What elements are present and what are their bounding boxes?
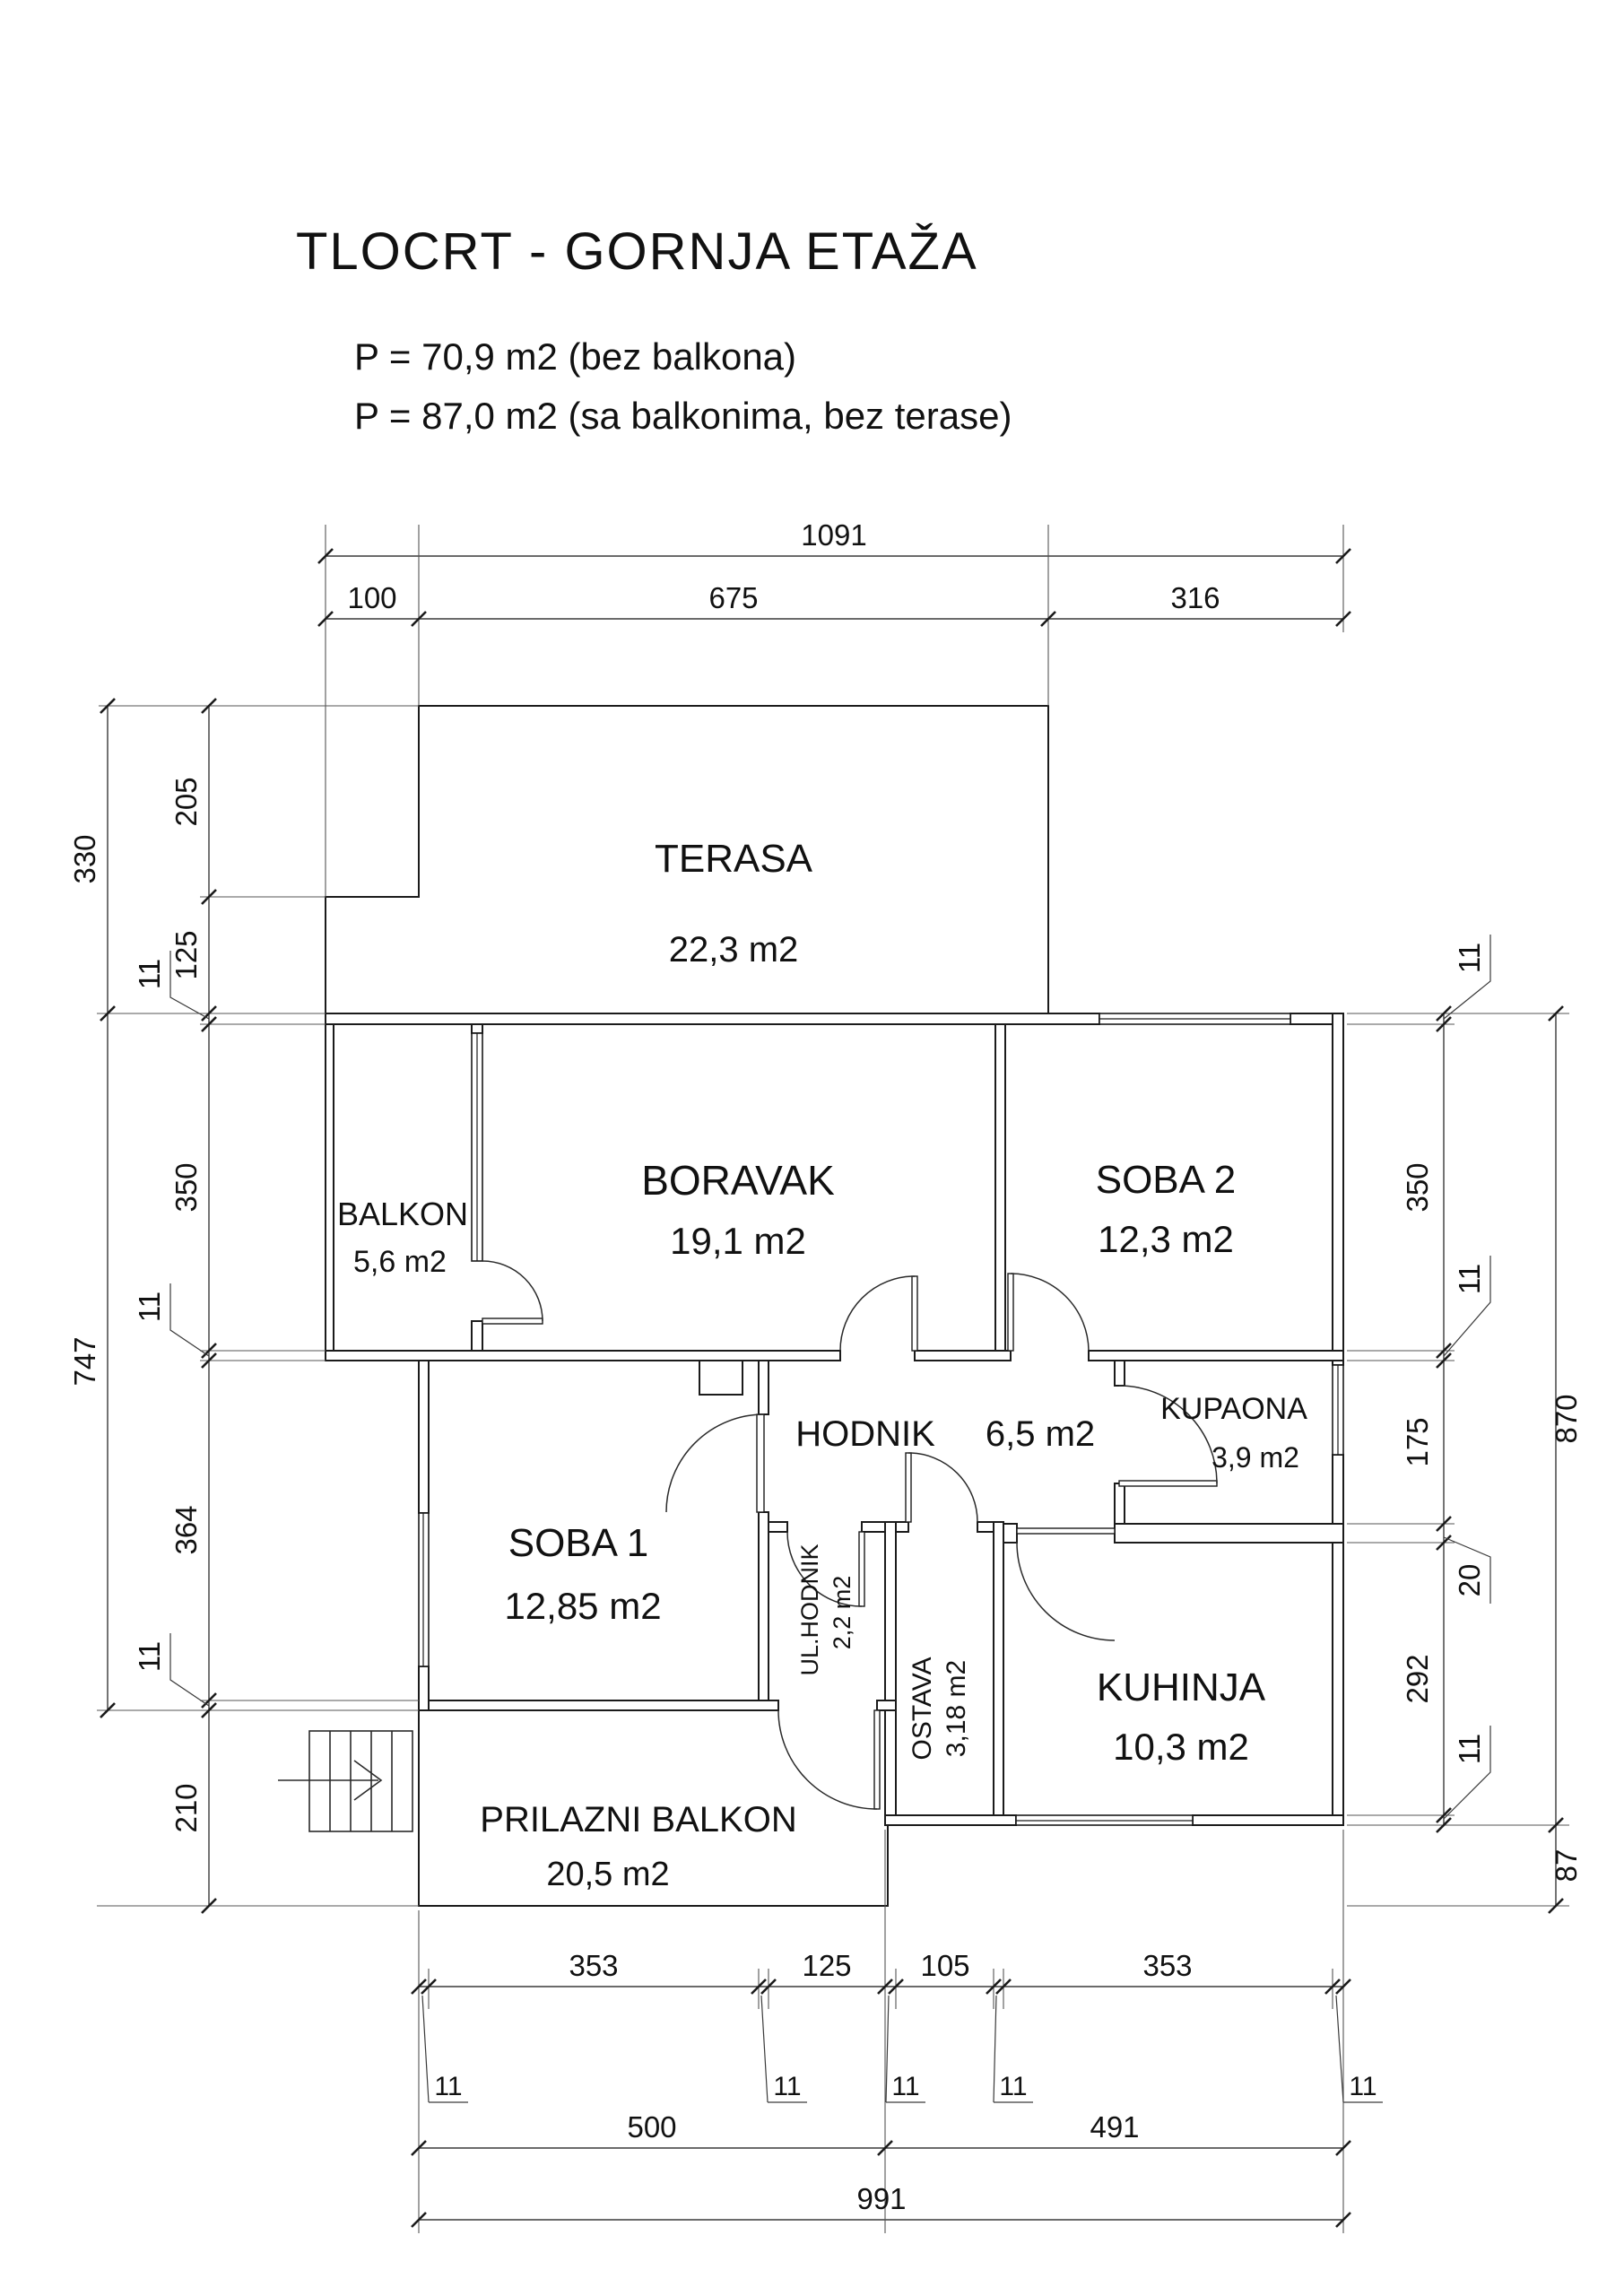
ticks-right xyxy=(1437,1006,1563,1913)
dim-right-175: 175 xyxy=(1401,1417,1434,1466)
dim-bottom-total: 991 xyxy=(856,2182,906,2215)
wall-kupaona-left-lower-stub xyxy=(1115,1483,1125,1524)
door-arc-boravak xyxy=(840,1276,915,1351)
leaders-left xyxy=(170,951,209,1706)
dim-bottom-11d: 11 xyxy=(999,2072,1027,2101)
dim-left-11b: 11 xyxy=(133,1291,166,1322)
door-arc-soba1 xyxy=(666,1414,764,1512)
wall-ulhodnik-bottom-stub xyxy=(877,1700,896,1710)
room-area-soba1: 12,85 m2 xyxy=(504,1585,661,1627)
dim-left-11a: 11 xyxy=(133,959,166,989)
room-label-terasa: TERASA xyxy=(655,837,813,881)
dim-left-350: 350 xyxy=(169,1162,203,1212)
wall-kitchen-bottom-right xyxy=(1193,1815,1343,1825)
dim-bottom-500: 500 xyxy=(627,2110,676,2144)
wall-boravak-soba2-divider xyxy=(995,1024,1005,1351)
wall-ostava-right xyxy=(994,1522,1003,1815)
room-label-balkon: BALKON xyxy=(337,1196,468,1232)
room-label-kupaona: KUPAONA xyxy=(1160,1392,1307,1426)
dim-left-364: 364 xyxy=(169,1505,203,1554)
dim-bottom-125: 125 xyxy=(802,1949,851,1982)
room-area-ulhodnik: 2,2 m2 xyxy=(829,1576,855,1650)
room-label-ostava: OSTAVA xyxy=(908,1657,937,1760)
room-area-prilazni-balkon: 20,5 m2 xyxy=(546,1856,669,1893)
leaders-right xyxy=(1444,935,1490,1819)
wall-ulhodnik-ostava-divider xyxy=(885,1522,896,1825)
door-leaf-balkon xyxy=(482,1318,543,1324)
dim-left-747: 747 xyxy=(68,1336,101,1386)
door-leaf-ostava xyxy=(906,1453,911,1522)
wall-mid-right xyxy=(1089,1351,1343,1361)
area-note-1: P = 70,9 m2 (bez balkona) xyxy=(354,335,796,378)
dim-bottom-11b: 11 xyxy=(773,2072,801,2101)
dim-right-870: 870 xyxy=(1550,1394,1583,1443)
dim-right-20: 20 xyxy=(1453,1564,1486,1597)
room-label-kuhinja: KUHINJA xyxy=(1097,1665,1266,1709)
outlines xyxy=(326,706,1048,1906)
dim-lines-right xyxy=(1444,1013,1556,1906)
dimension-texts: 1091 100 675 316 330 747 205 125 11 350 … xyxy=(68,518,1583,2215)
dim-top-675: 675 xyxy=(708,581,758,614)
title-block: TLOCRT - GORNJA ETAŽA P = 70,9 m2 (bez b… xyxy=(296,222,1012,437)
door-leaf-entry xyxy=(874,1710,880,1809)
extension-lines-right xyxy=(1347,1013,1569,1906)
wall-kitchen-bottom-left xyxy=(885,1815,1016,1825)
dim-bottom-353b: 353 xyxy=(1142,1949,1192,1982)
dim-right-11c: 11 xyxy=(1453,1734,1486,1764)
area-note-2: P = 87,0 m2 (sa balkonima, bez terase) xyxy=(354,395,1012,437)
dim-bottom-105: 105 xyxy=(920,1949,969,1982)
stairs-treads xyxy=(330,1731,392,1831)
dim-right-11a: 11 xyxy=(1453,943,1486,973)
dim-left-210: 210 xyxy=(169,1783,203,1832)
dim-top-100: 100 xyxy=(347,581,396,614)
room-labels: TERASA 22,3 m2 BALKON 5,6 m2 BORAVAK 19,… xyxy=(337,837,1307,1893)
wall-soba1-left-upper xyxy=(419,1361,429,1513)
door-leaf-soba1 xyxy=(757,1414,764,1512)
dim-right-292: 292 xyxy=(1401,1654,1434,1703)
room-area-hodnik: 6,5 m2 xyxy=(986,1414,1095,1454)
wall-soba1-bottom xyxy=(419,1700,778,1710)
door-leaf-kuhinja xyxy=(1017,1528,1115,1534)
page-title: TLOCRT - GORNJA ETAŽA xyxy=(296,222,978,281)
door-leaf-soba2 xyxy=(1008,1274,1013,1351)
stairs-body xyxy=(309,1731,413,1831)
wall-balcony-divider-bottom-stub xyxy=(472,1321,482,1351)
door-arc-balkon xyxy=(482,1261,543,1321)
room-label-prilazni-balkon: PRILAZNI BALKON xyxy=(480,1800,796,1839)
wall-soba1-right-lower xyxy=(759,1512,769,1700)
dim-right-11b: 11 xyxy=(1453,1264,1486,1294)
door-arc-kuhinja xyxy=(1017,1543,1115,1640)
dim-left-11c: 11 xyxy=(133,1641,166,1672)
floor-plan-drawing: TLOCRT - GORNJA ETAŽA P = 70,9 m2 (bez b… xyxy=(0,0,1624,2296)
stairs xyxy=(278,1731,413,1831)
dim-right-87: 87 xyxy=(1550,1849,1583,1883)
wall-right-lower xyxy=(1333,1455,1343,1825)
dim-top-total: 1091 xyxy=(801,518,866,552)
wall-ulhodnik-top-left-stub xyxy=(769,1522,787,1532)
drawing-sheet: TLOCRT - GORNJA ETAŽA P = 70,9 m2 (bez b… xyxy=(0,0,1624,2296)
wall-mid-center xyxy=(915,1351,1011,1361)
dim-left-205: 205 xyxy=(169,777,203,826)
dim-top-316: 316 xyxy=(1170,581,1220,614)
room-label-boravak: BORAVAK xyxy=(641,1157,835,1204)
chimney-block xyxy=(699,1361,743,1395)
room-area-boravak: 19,1 m2 xyxy=(670,1220,806,1262)
door-leaf-ulhodnik xyxy=(859,1532,864,1606)
door-arc-ostava xyxy=(908,1453,977,1522)
wall-kitchen-top-stub xyxy=(1003,1524,1017,1543)
room-label-ulhodnik: UL.HODNIK xyxy=(796,1544,823,1675)
wall-mid-left xyxy=(326,1351,840,1361)
room-area-terasa: 22,3 m2 xyxy=(669,930,799,970)
room-label-soba2: SOBA 2 xyxy=(1096,1158,1237,1202)
wall-balcony-divider-top-stub xyxy=(472,1024,482,1033)
room-area-soba2: 12,3 m2 xyxy=(1098,1218,1234,1260)
room-area-kupaona: 3,9 m2 xyxy=(1211,1441,1299,1474)
room-label-hodnik: HODNIK xyxy=(795,1414,935,1454)
dim-left-125: 125 xyxy=(169,930,203,979)
wall-soba1-left-lower xyxy=(419,1666,429,1710)
dim-bottom-11a: 11 xyxy=(434,2072,462,2101)
door-leaf-boravak xyxy=(912,1276,917,1351)
dim-bottom-491: 491 xyxy=(1090,2110,1139,2144)
dim-right-350: 350 xyxy=(1401,1162,1434,1212)
door-leaf-kupaona xyxy=(1119,1481,1217,1486)
door-arc-soba2 xyxy=(1011,1274,1089,1351)
wall-right-upper xyxy=(1333,1013,1343,1365)
wall-kupaona-left-upper-stub xyxy=(1115,1361,1125,1386)
wall-kupaona-bottom xyxy=(1115,1524,1343,1543)
dim-left-330: 330 xyxy=(68,834,101,883)
room-area-kuhinja: 10,3 m2 xyxy=(1113,1726,1249,1768)
dim-bottom-353a: 353 xyxy=(569,1949,618,1982)
balcony-left-rail xyxy=(326,1024,334,1351)
wall-soba1-right-upper-stub xyxy=(759,1361,769,1414)
door-arc-entry xyxy=(778,1710,877,1809)
room-area-ostava: 3,18 m2 xyxy=(942,1660,971,1757)
dim-bottom-11c: 11 xyxy=(891,2072,919,2101)
wall-top-left xyxy=(326,1013,1099,1024)
room-area-balkon: 5,6 m2 xyxy=(353,1245,447,1279)
room-label-soba1: SOBA 1 xyxy=(508,1521,649,1565)
dim-bottom-11e: 11 xyxy=(1349,2072,1376,2101)
